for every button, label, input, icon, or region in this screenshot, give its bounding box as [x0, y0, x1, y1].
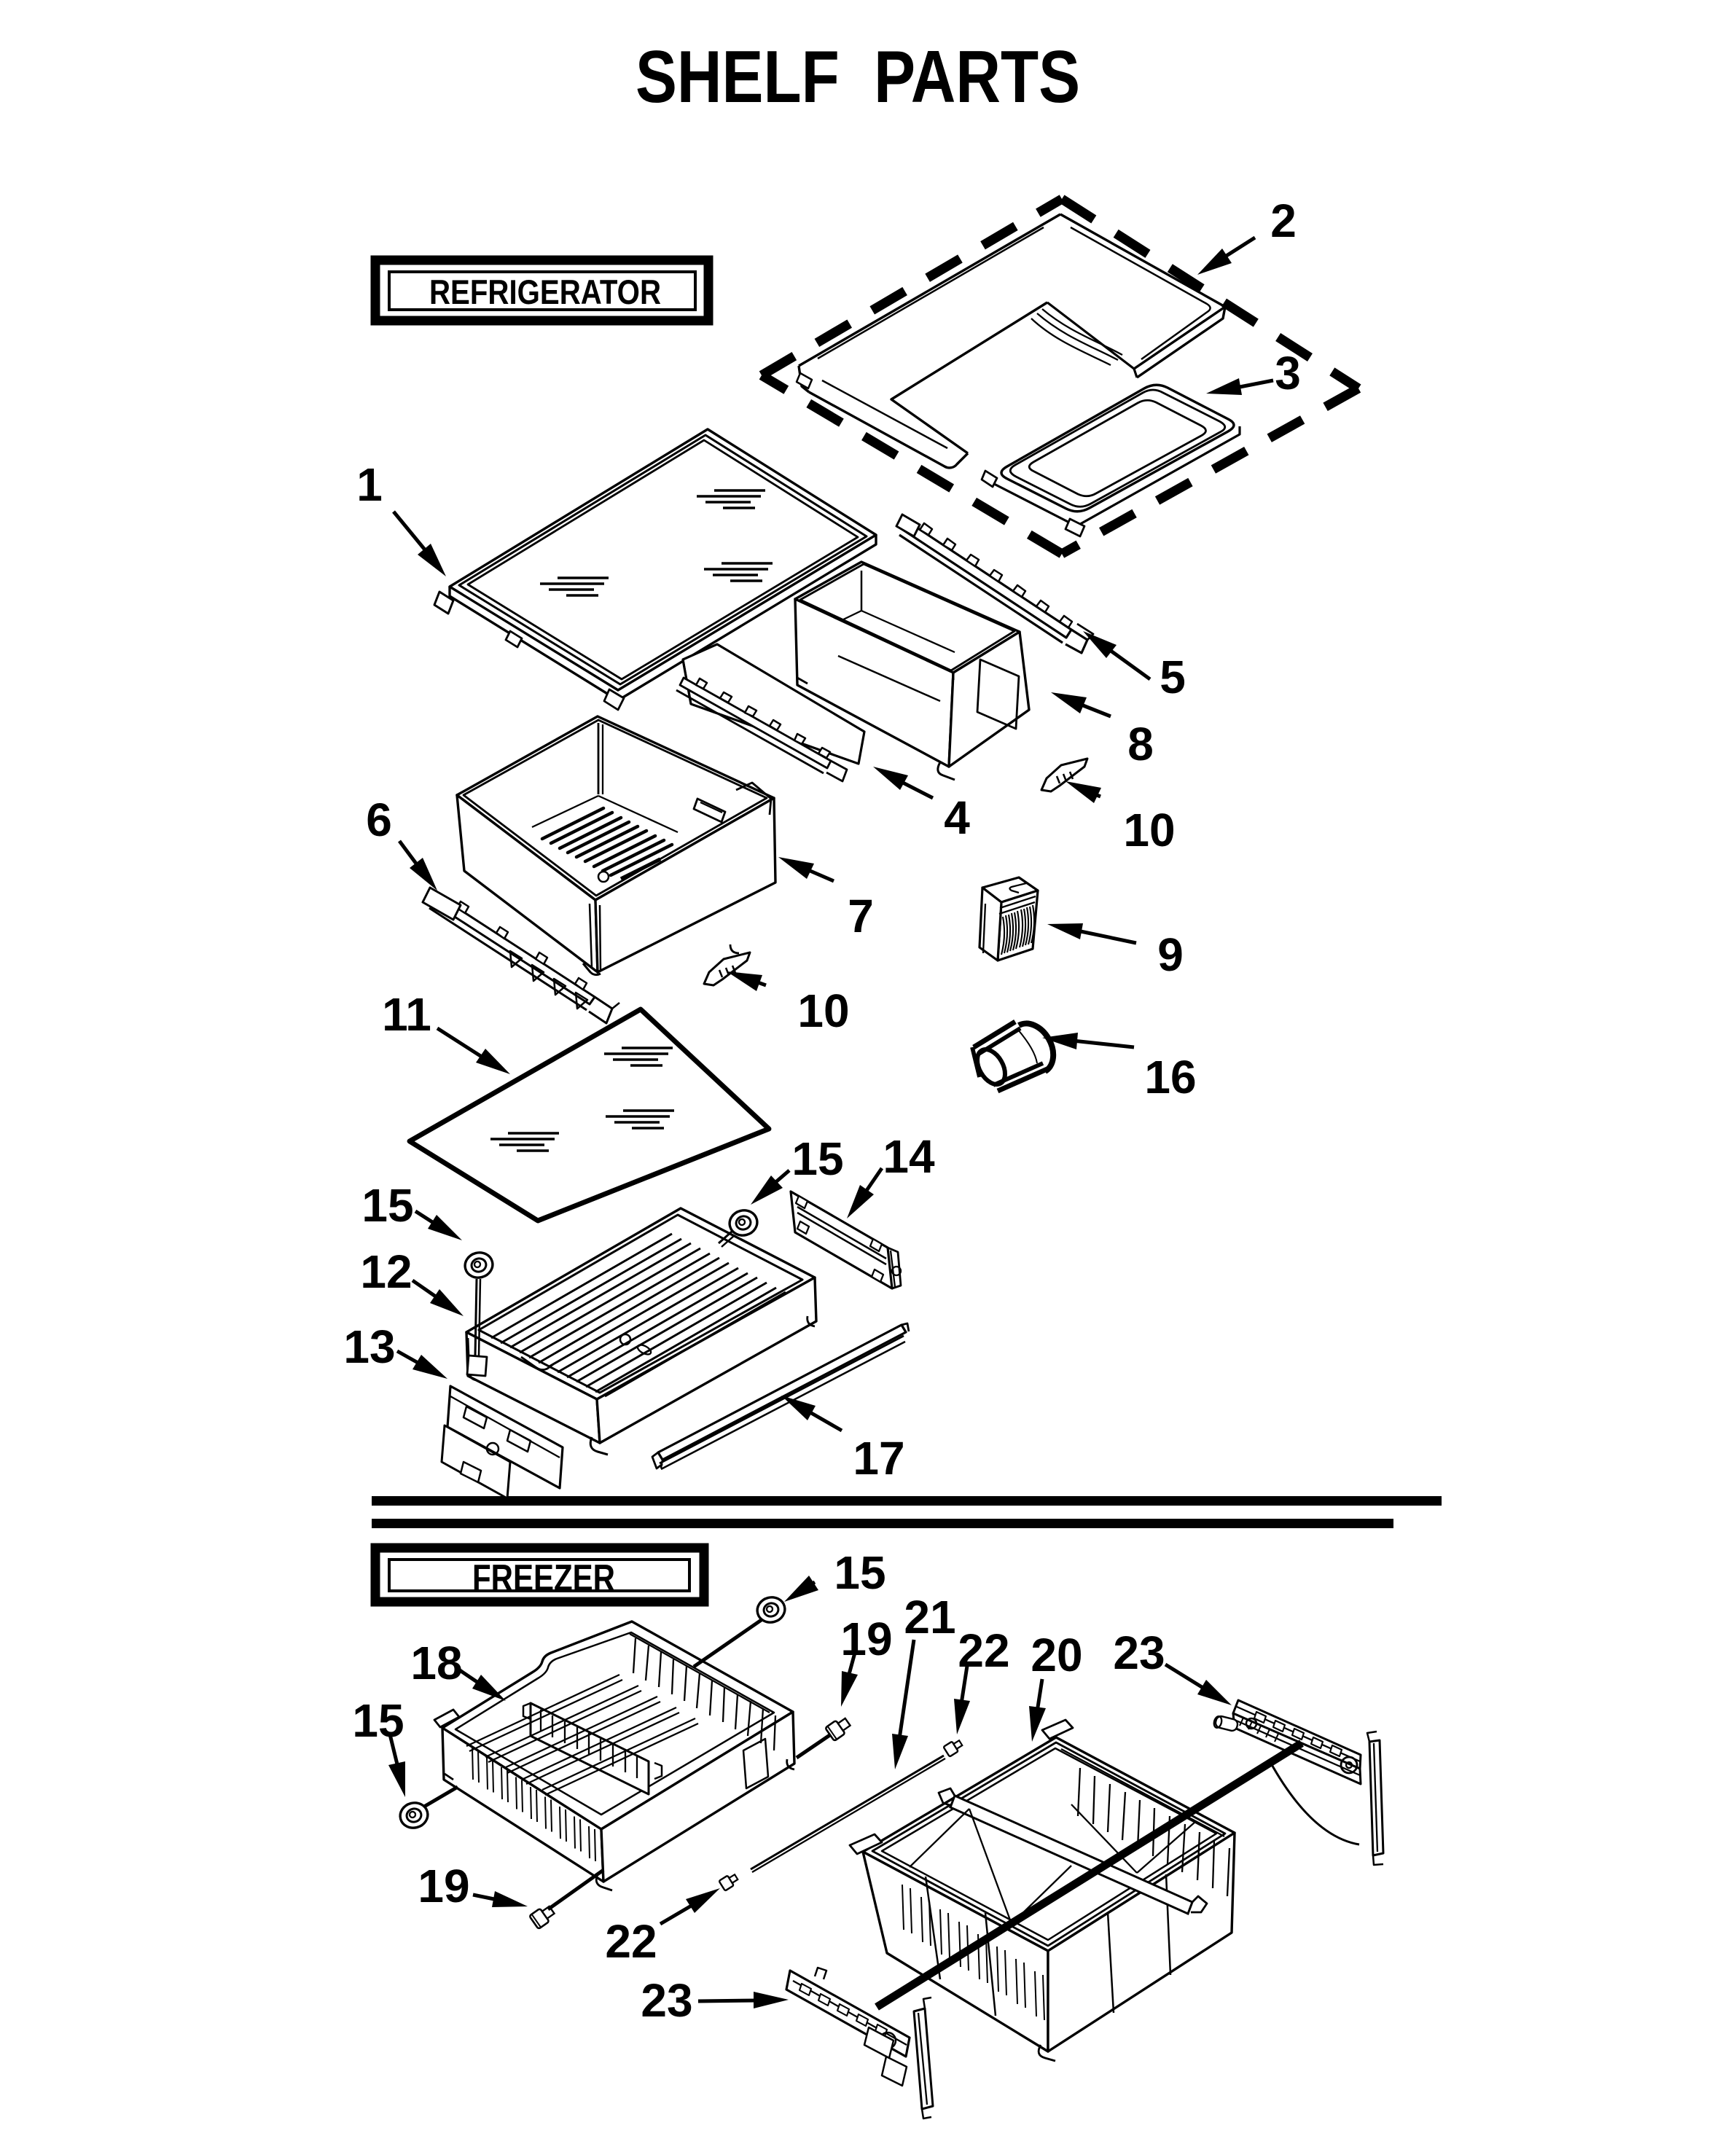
svg-text:15: 15: [834, 1546, 885, 1599]
svg-text:19: 19: [418, 1860, 469, 1912]
svg-text:23: 23: [641, 1974, 692, 2027]
svg-text:19: 19: [840, 1613, 892, 1665]
svg-text:15: 15: [352, 1694, 404, 1747]
svg-text:18: 18: [410, 1637, 462, 1689]
svg-text:13: 13: [343, 1321, 395, 1373]
svg-text:20: 20: [1031, 1629, 1082, 1681]
svg-text:12: 12: [360, 1245, 412, 1298]
svg-text:16: 16: [1144, 1051, 1196, 1103]
svg-text:3: 3: [1275, 347, 1301, 399]
svg-text:11: 11: [382, 988, 431, 1041]
svg-text:SHELF PARTS: SHELF PARTS: [636, 36, 1080, 118]
svg-text:2: 2: [1270, 195, 1297, 247]
svg-text:REFRIGERATOR: REFRIGERATOR: [429, 273, 661, 311]
svg-text:4: 4: [944, 791, 970, 844]
svg-text:17: 17: [853, 1432, 904, 1484]
svg-text:15: 15: [361, 1179, 413, 1232]
svg-text:1: 1: [356, 458, 383, 511]
svg-text:10: 10: [797, 985, 849, 1037]
svg-text:14: 14: [883, 1130, 935, 1183]
svg-text:15: 15: [791, 1132, 843, 1185]
svg-text:6: 6: [366, 794, 392, 846]
svg-text:5: 5: [1160, 651, 1186, 703]
svg-text:9: 9: [1157, 928, 1184, 981]
svg-text:22: 22: [605, 1915, 657, 1968]
svg-text:23: 23: [1113, 1627, 1165, 1679]
svg-text:FREEZER: FREEZER: [472, 1557, 615, 1600]
svg-text:8: 8: [1127, 718, 1154, 770]
svg-text:10: 10: [1123, 804, 1175, 856]
svg-text:7: 7: [848, 890, 874, 942]
svg-text:21: 21: [904, 1591, 955, 1643]
